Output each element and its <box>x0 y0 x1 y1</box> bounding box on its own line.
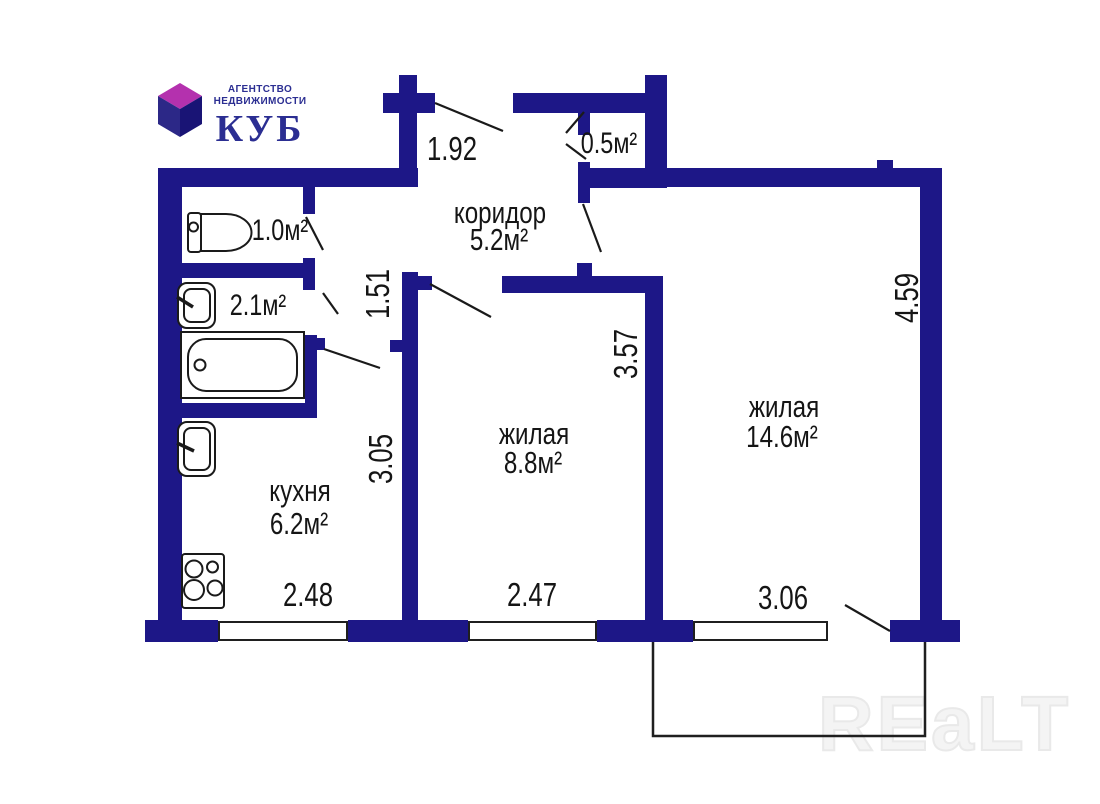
wall <box>418 276 432 290</box>
dim-label-entry-width: 1.92 <box>427 130 477 168</box>
dim-label-kitchen-width: 2.48 <box>283 576 333 614</box>
room-label-living2-area: 14.6м² <box>746 419 818 455</box>
wall <box>920 168 942 642</box>
wc-door-swing <box>306 217 323 250</box>
wall <box>390 340 402 352</box>
dim-label-hallway-depth: 1.51 <box>359 269 397 319</box>
logo-tagline-line1: АГЕНТСТВО <box>210 84 310 96</box>
wall <box>513 93 665 113</box>
wall <box>578 162 590 203</box>
dim-label-living1-depth: 3.57 <box>607 329 645 379</box>
kitchen-window <box>218 621 348 641</box>
wall <box>577 263 592 293</box>
wall <box>303 186 315 214</box>
bathroom-door-swing <box>323 293 338 314</box>
wall <box>399 75 417 187</box>
kitchen-sink-icon <box>177 422 215 476</box>
stove-icon <box>182 554 224 608</box>
wall <box>158 168 418 187</box>
kitchen-door-swing <box>324 349 380 368</box>
wall <box>590 168 647 188</box>
dim-label-living2-width: 3.06 <box>758 579 808 617</box>
balcony-door-swing <box>845 605 890 631</box>
dim-label-living1-width: 2.47 <box>507 576 557 614</box>
toilet-icon <box>188 213 252 252</box>
wall <box>645 75 667 188</box>
logo-cube-icon <box>156 80 204 138</box>
wall <box>303 258 315 290</box>
floor-plan: REaLT <box>0 0 1100 804</box>
room-label-corridor-area: 5.2м² <box>470 222 528 258</box>
logo-brand: КУБ <box>210 110 310 148</box>
wall <box>145 620 218 642</box>
wall <box>402 272 418 642</box>
logo-tagline-line2: НЕДВИЖИМОСТИ <box>210 96 310 108</box>
living1-window <box>468 621 597 641</box>
wall <box>158 403 317 418</box>
wall <box>315 338 325 350</box>
bathtub-icon <box>181 332 304 398</box>
room-label-closet-area: 0.5м² <box>581 127 637 161</box>
living1-door-swing <box>430 284 491 317</box>
room-label-kitchen-area: 6.2м² <box>270 506 328 542</box>
room-label-bathroom-area: 2.1м² <box>230 289 286 323</box>
room-label-wc-area: 1.0м² <box>252 214 308 248</box>
entry-door-swing <box>435 103 503 131</box>
wall <box>890 620 960 642</box>
wall <box>645 168 942 187</box>
wall <box>383 93 435 113</box>
wall <box>877 160 893 170</box>
realt-watermark: REaLT <box>818 686 1071 763</box>
wall <box>645 276 663 642</box>
living2-window <box>693 621 828 641</box>
dim-label-kitchen-depth: 3.05 <box>362 434 400 484</box>
wall <box>158 263 315 278</box>
dim-label-living2-depth: 4.59 <box>888 273 926 323</box>
logo-text: АГЕНТСТВО НЕДВИЖИМОСТИ КУБ <box>210 84 310 148</box>
living2-door-swing <box>583 204 601 252</box>
bathroom-sink-icon <box>177 283 215 328</box>
room-label-living1-area: 8.8м² <box>504 445 562 481</box>
room-label-kitchen-name: кухня <box>269 473 330 509</box>
